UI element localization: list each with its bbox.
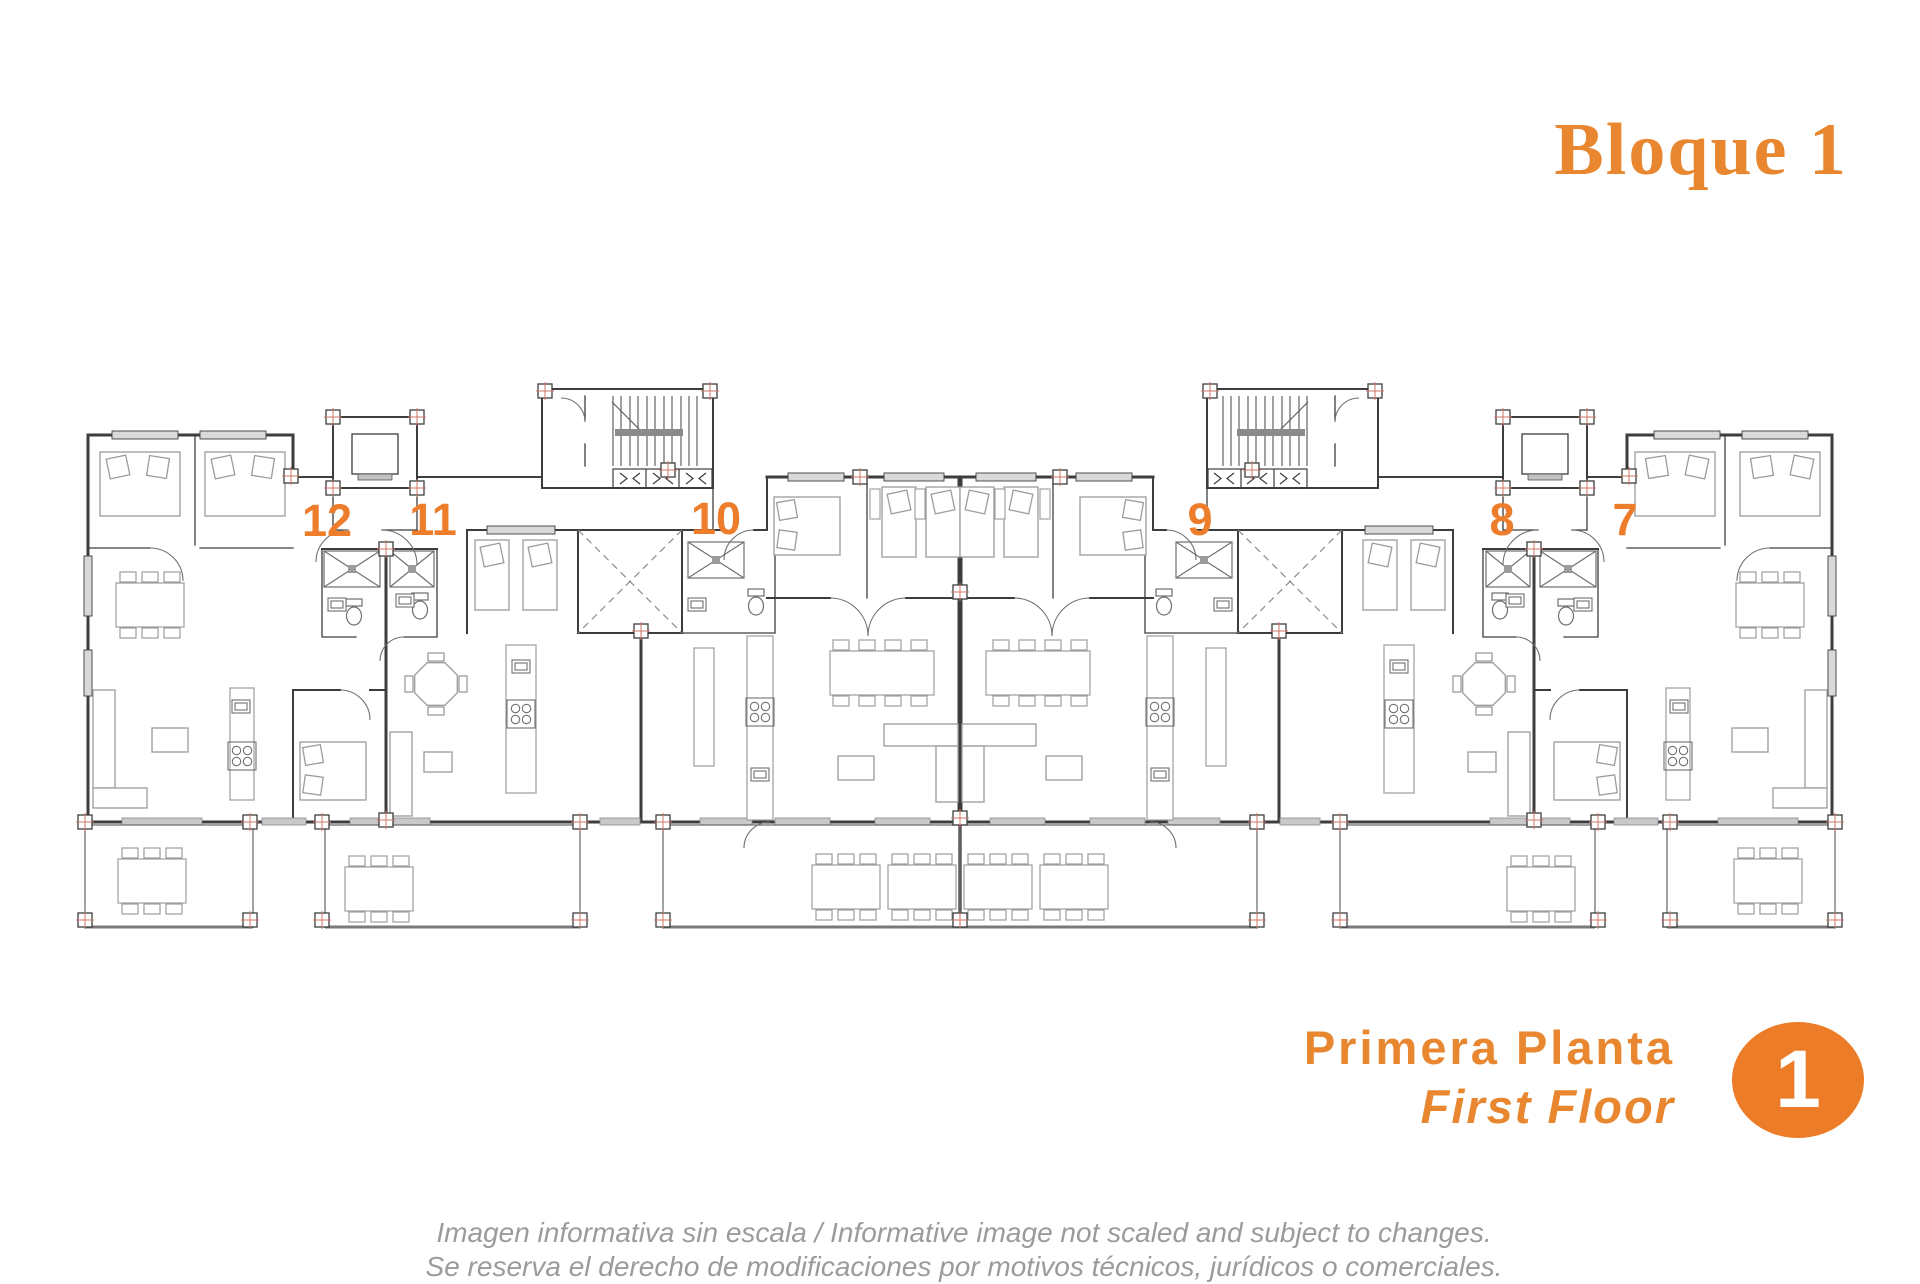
unit-label-8: 8 <box>1489 494 1514 546</box>
page: Bloque 1 12 11 10 9 8 7 Primera Planta F… <box>0 0 1920 1280</box>
unit-label-7: 7 <box>1612 494 1637 546</box>
unit-label-9: 9 <box>1187 494 1212 546</box>
building-right-half <box>960 382 1844 929</box>
disclaimer-line-1: Imagen informativa sin escala / Informat… <box>0 1216 1920 1250</box>
building-left-half <box>76 382 960 929</box>
floor-badge-number: 1 <box>1775 1039 1821 1121</box>
unit-label-10: 10 <box>691 493 741 545</box>
floor-title-en: First Floor <box>975 1079 1675 1134</box>
disclaimer-line-2: Se reserva el derecho de modificaciones … <box>0 1250 1920 1284</box>
unit-label-11: 11 <box>409 494 457 546</box>
disclaimer: Imagen informativa sin escala / Informat… <box>0 1216 1920 1284</box>
unit-label-12: 12 <box>302 495 352 547</box>
page-title: Bloque 1 <box>948 108 1848 193</box>
floor-title-es: Primera Planta <box>975 1020 1675 1075</box>
floor-badge: 1 <box>1732 1022 1864 1138</box>
